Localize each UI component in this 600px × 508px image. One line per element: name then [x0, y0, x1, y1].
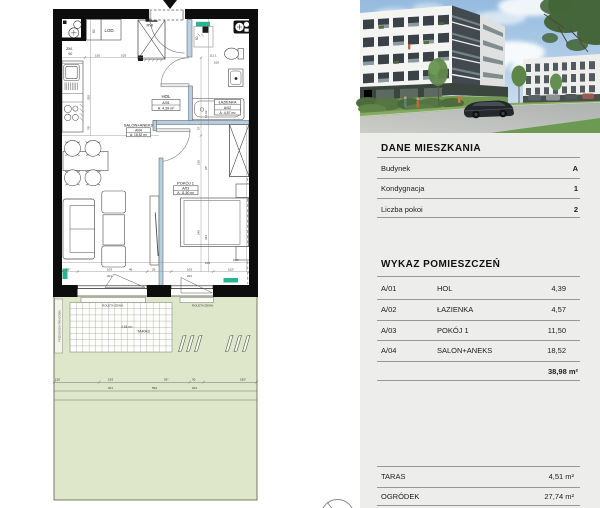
svg-text:LOD.: LOD.: [105, 28, 115, 33]
svg-text:A: 18,52 m²: A: 18,52 m²: [130, 133, 148, 137]
svg-text:PRZEGRODA TARASOWA: PRZEGRODA TARASOWA: [58, 310, 62, 342]
svg-text:30: 30: [192, 378, 196, 382]
svg-text:RW: RW: [147, 23, 154, 28]
svg-text:105: 105: [121, 54, 126, 58]
svg-text:A/01: A/01: [162, 101, 169, 105]
svg-text:46: 46: [129, 268, 133, 272]
svg-text:HOL: HOL: [161, 94, 171, 99]
svg-text:60: 60: [69, 52, 73, 56]
svg-text:562: 562: [152, 386, 157, 390]
svg-text:60: 60: [195, 36, 199, 40]
svg-text:343: 343: [204, 235, 208, 240]
svg-text:57: 57: [197, 126, 201, 130]
svg-text:A/03: A/03: [182, 187, 189, 191]
svg-text:29: 29: [152, 268, 156, 272]
svg-text:97¹: 97¹: [204, 166, 208, 170]
svg-text:60: 60: [92, 29, 96, 33]
svg-text:103: 103: [205, 261, 210, 265]
svg-text:155: 155: [197, 160, 201, 165]
svg-text:102°: 102°: [233, 258, 240, 262]
svg-text:182°: 182°: [240, 378, 247, 382]
svg-text:A: 4,39 m²: A: 4,39 m²: [158, 106, 175, 110]
svg-text:103: 103: [107, 268, 112, 272]
svg-text:29°: 29°: [66, 268, 71, 272]
svg-text:103: 103: [187, 268, 192, 272]
svg-text:POKÓJ 1: POKÓJ 1: [177, 181, 195, 186]
svg-text:201: 201: [108, 386, 113, 390]
svg-text:ROLETA ZEWN.: ROLETA ZEWN.: [102, 304, 124, 308]
svg-text:111 1: 111 1: [210, 54, 217, 58]
svg-text:201: 201: [192, 386, 197, 390]
svg-text:14,62: 14,62: [204, 110, 208, 118]
svg-text:76¹: 76¹: [87, 126, 91, 130]
svg-text:ROLETA ZEWN.: ROLETA ZEWN.: [192, 304, 214, 308]
svg-text:201: 201: [107, 274, 112, 278]
svg-text:4,51 m²: 4,51 m²: [121, 325, 133, 329]
svg-text:A: 11,50 m²: A: 11,50 m²: [177, 191, 195, 195]
svg-text:150: 150: [95, 54, 100, 58]
svg-text:201: 201: [187, 274, 192, 278]
svg-text:240: 240: [197, 230, 201, 235]
svg-text:TARAS: TARAS: [137, 329, 150, 334]
svg-text:255: 255: [87, 95, 91, 100]
svg-text:102°: 102°: [228, 268, 235, 272]
svg-text:120: 120: [55, 378, 60, 382]
svg-text:A/04: A/04: [135, 129, 142, 133]
svg-text:A: 4,57 m²: A: 4,57 m²: [219, 111, 236, 115]
svg-text:ŁAZIENKA: ŁAZIENKA: [219, 101, 237, 105]
svg-text:SALON+ANEKS: SALON+ANEKS: [124, 123, 154, 128]
svg-text:ZM.: ZM.: [66, 46, 73, 51]
svg-text:A/02: A/02: [224, 106, 231, 110]
svg-text:100: 100: [214, 61, 219, 65]
svg-text:193: 193: [108, 378, 113, 382]
svg-text:93°: 93°: [164, 378, 169, 382]
